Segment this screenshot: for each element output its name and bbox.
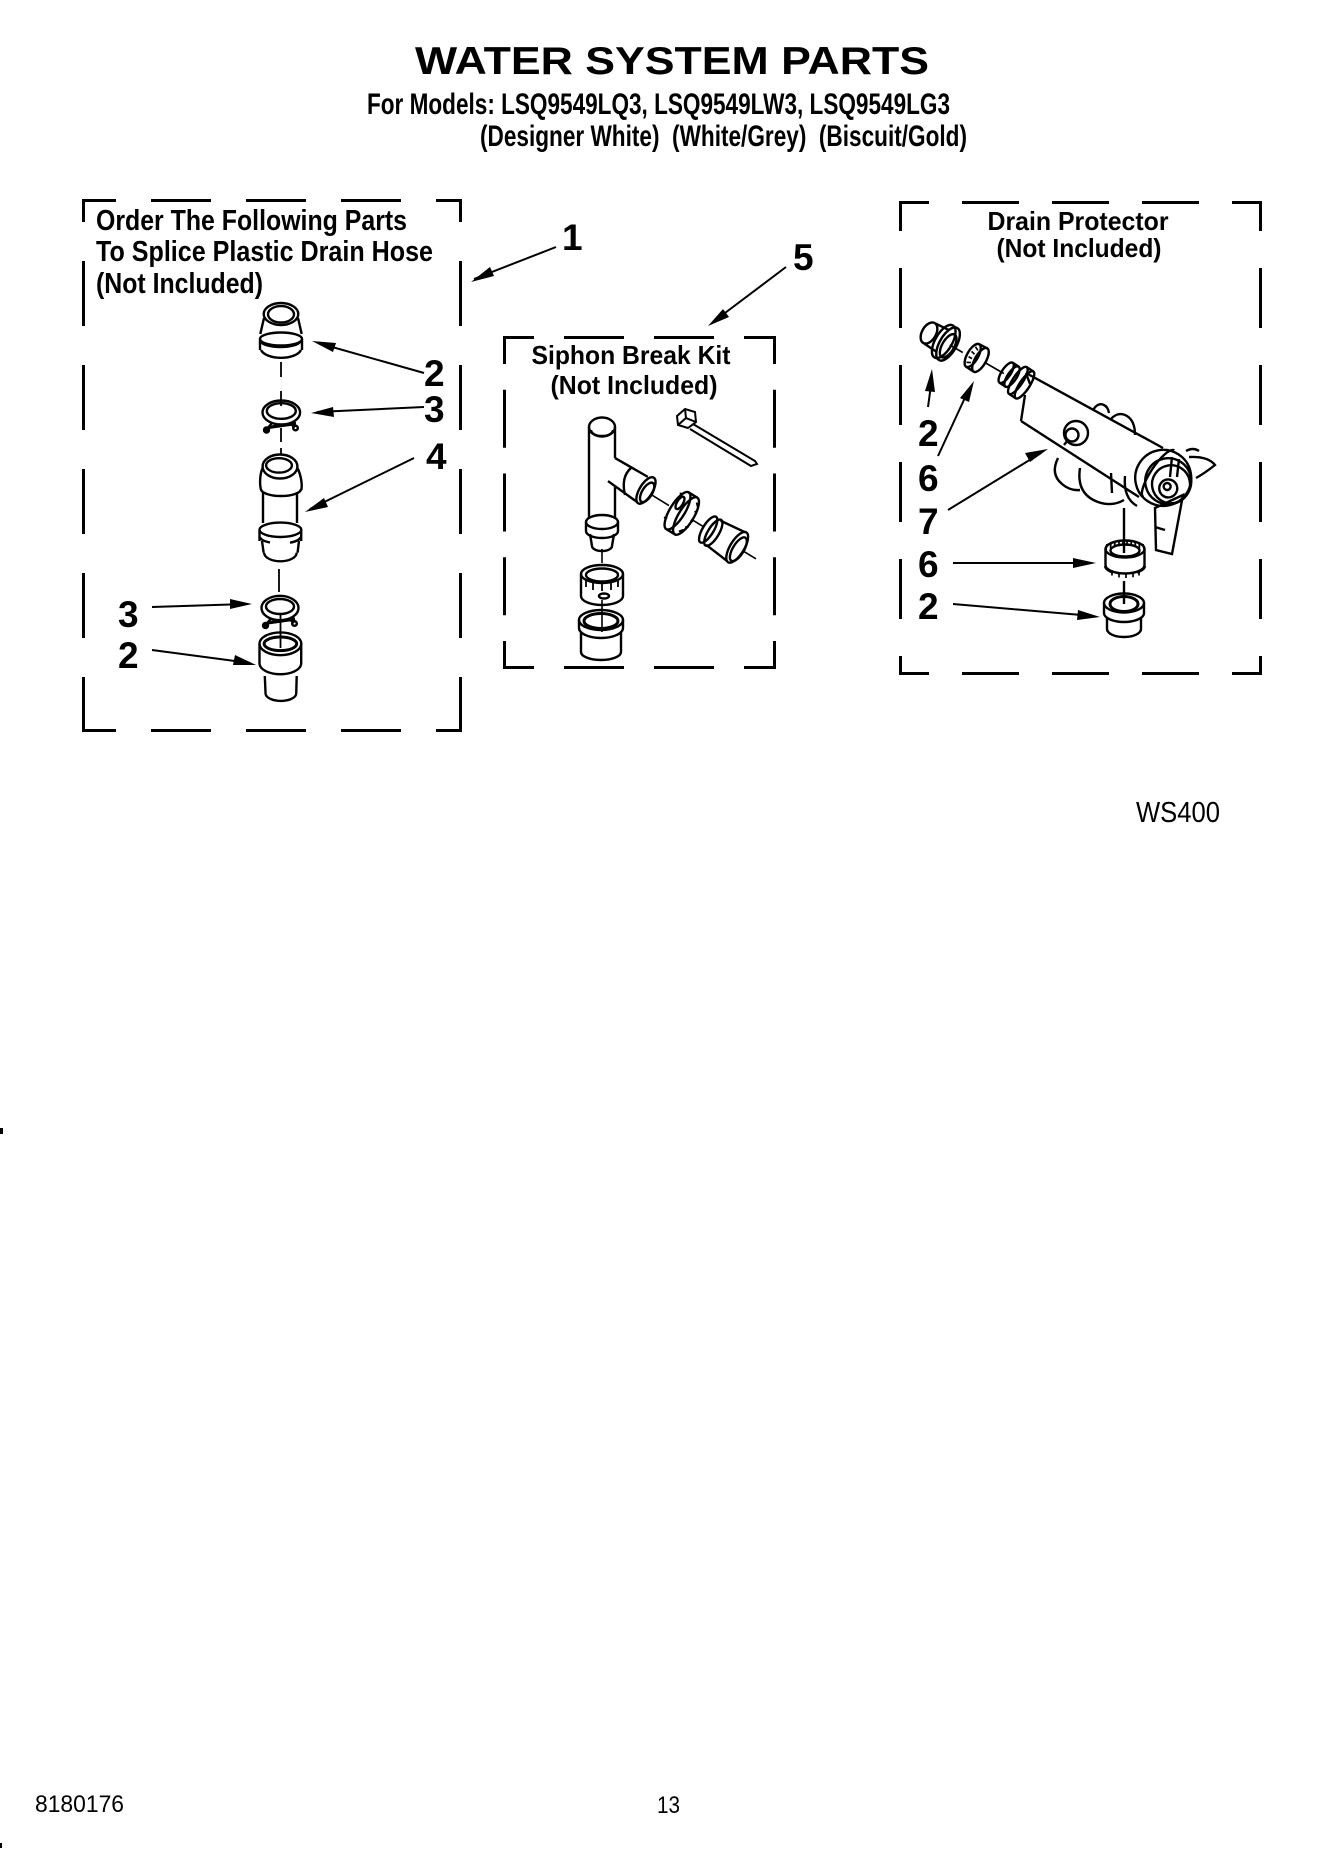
svg-text:8180176: 8180176 — [35, 1791, 124, 1818]
svg-text:5: 5 — [793, 237, 814, 278]
svg-text:2: 2 — [424, 353, 445, 394]
svg-text:WATER SYSTEM PARTS: WATER SYSTEM PARTS — [415, 40, 929, 83]
svg-text:(Not Included): (Not Included) — [551, 370, 718, 400]
svg-text:4: 4 — [426, 436, 447, 477]
svg-text:1: 1 — [562, 217, 583, 258]
svg-text:6: 6 — [918, 544, 939, 585]
svg-text:7: 7 — [918, 501, 939, 542]
svg-text:WS400: WS400 — [1136, 797, 1220, 829]
svg-text:(Designer White) (White/Grey): (Designer White) (White/Grey) (Biscuit/G… — [480, 120, 967, 153]
svg-text:For Models: LSQ9549LQ3, LSQ954: For Models: LSQ9549LQ3, LSQ9549LW3, LSQ9… — [367, 88, 950, 121]
svg-text:13: 13 — [657, 1792, 680, 1819]
svg-text:3: 3 — [424, 389, 445, 430]
svg-text:2: 2 — [118, 635, 139, 676]
svg-text:Order The Following Parts: Order The Following Parts — [96, 205, 407, 237]
svg-text:Drain Protector: Drain Protector — [988, 206, 1169, 236]
svg-text:(Not Included): (Not Included) — [96, 268, 263, 300]
svg-text:Siphon Break Kit: Siphon Break Kit — [532, 340, 731, 370]
svg-text:To Splice Plastic Drain Hose: To Splice Plastic Drain Hose — [96, 236, 433, 268]
svg-text:3: 3 — [118, 594, 139, 635]
svg-text:6: 6 — [918, 458, 939, 499]
svg-text:2: 2 — [918, 413, 939, 454]
svg-text:2: 2 — [918, 586, 939, 627]
svg-text:(Not Included): (Not Included) — [997, 233, 1162, 263]
